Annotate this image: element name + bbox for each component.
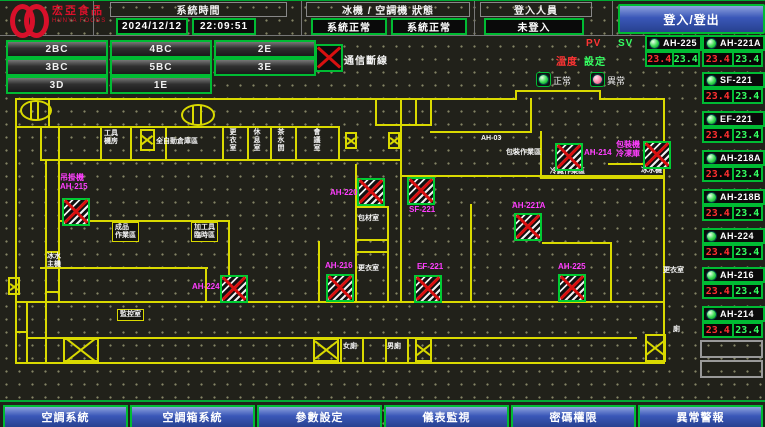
wall-segment	[415, 98, 417, 126]
device-values-AH-216: 23.423.4	[702, 283, 763, 299]
device-values-AH-225: 23.423.4	[645, 51, 700, 67]
device-row-AH-218B[interactable]: AH-218B	[702, 189, 765, 205]
nav-button-空調系統[interactable]: 空調系統	[3, 405, 128, 427]
stair-shaft-icon	[313, 338, 339, 362]
chiller-status-value: 系統正常	[311, 18, 387, 35]
device-status-led	[706, 231, 717, 242]
device-status-led	[706, 192, 717, 203]
device-pv-value: 23.4	[704, 246, 734, 258]
ahu-unit-icon[interactable]	[558, 274, 586, 302]
floor-button-1E[interactable]: 1E	[110, 76, 212, 94]
wall-segment	[387, 206, 389, 303]
ahu-unit-icon[interactable]	[407, 177, 435, 205]
header-divider	[474, 1, 475, 35]
wall-segment	[355, 206, 389, 208]
brand-name-en: HUNYA FOODS	[52, 16, 106, 26]
device-pv-value: 23.4	[704, 324, 734, 336]
device-name: AH-214	[720, 309, 754, 319]
room-label: 包裝作業區	[506, 149, 541, 157]
device-name: AH-218A	[720, 153, 761, 163]
device-pv-value: 23.4	[704, 90, 734, 102]
wall-segment	[542, 242, 612, 244]
system-time-label: 系統時間	[110, 2, 287, 17]
login-status-value: 未登入	[484, 18, 584, 35]
device-sv-value: 23.4	[734, 207, 762, 219]
room-label: 工具機房	[104, 130, 118, 146]
login-user-label: 登入人員	[480, 2, 592, 17]
temp-row-label: 溫度	[556, 53, 578, 68]
room-label: 監控室	[117, 309, 144, 321]
device-row-AH-218A[interactable]: AH-218A	[702, 150, 765, 166]
device-values-SF-221: 23.423.4	[702, 88, 763, 104]
wall-segment	[362, 337, 364, 364]
device-pv-value: 23.4	[704, 285, 734, 297]
ahu-unit-icon[interactable]	[514, 213, 542, 241]
wall-segment	[100, 126, 102, 161]
device-sv-value: 23.4	[734, 285, 762, 297]
wall-segment	[530, 98, 532, 133]
room-label: 茶水間	[276, 128, 284, 152]
device-sv-value: 23.4	[734, 324, 762, 336]
device-sv-value: 23.4	[734, 53, 762, 65]
room-label: 成品作業區	[112, 222, 139, 242]
header-divider	[93, 1, 94, 35]
room-label: 加工具臨時區	[191, 222, 218, 242]
device-status-led	[706, 153, 717, 164]
nav-button-參數設定[interactable]: 參數設定	[257, 405, 382, 427]
device-status-led	[706, 114, 717, 125]
system-time-value: 22:09:51	[192, 18, 256, 35]
ahu-unit-icon[interactable]	[357, 178, 385, 206]
wall-segment	[222, 126, 224, 161]
header-divider	[301, 1, 302, 35]
comm-disconnect-label: 通信斷線	[344, 52, 388, 67]
device-sv-value: 23.4	[734, 90, 762, 102]
header-divider	[612, 1, 613, 35]
bottom-nav-bar: 空調系統空調箱系統參數設定儀表監視密碼權限異常警報	[0, 400, 765, 427]
device-values-AH-218B: 23.423.4	[702, 205, 763, 221]
comm-disconnect-icon	[315, 44, 343, 72]
floor-button-4BC[interactable]: 4BC	[110, 40, 212, 58]
wall-segment	[470, 204, 472, 303]
device-pv-value: 23.4	[704, 168, 734, 180]
sv-column-label: SV	[618, 38, 633, 49]
device-pv-value: 23.4	[704, 207, 734, 219]
nav-button-異常警報[interactable]: 異常警報	[638, 405, 763, 427]
stair-shaft-icon	[63, 338, 99, 362]
room-label: 男廁	[387, 343, 401, 351]
ahu-unit-label: AH-216	[325, 261, 353, 270]
set-row-label: 設定	[584, 53, 606, 68]
device-name: AH-216	[720, 270, 754, 280]
room-label: 女廁	[343, 343, 357, 351]
wall-segment	[599, 90, 601, 100]
wall-segment	[599, 98, 665, 100]
ahu-unit-label: SF-221	[409, 205, 435, 214]
ahu-unit-icon[interactable]	[643, 141, 671, 169]
device-status-led	[706, 309, 717, 320]
stair-shaft-icon	[388, 132, 400, 149]
ahu-unit-icon[interactable]	[326, 274, 354, 302]
stair-shaft-icon	[8, 277, 20, 295]
room-label: 冰水主機	[47, 253, 61, 269]
ahu-unit-label: 吊掛機AH-215	[60, 173, 88, 191]
room-label: 更衣室	[358, 265, 379, 273]
spiral-stair-icon	[20, 100, 52, 121]
room-label: 包材室	[358, 215, 379, 223]
device-pv-value: 23.4	[704, 53, 734, 65]
device-row-AH-224[interactable]: AH-224	[702, 228, 765, 244]
wall-segment	[15, 331, 28, 333]
brand-text: 宏亞食品 HUNYA FOODS	[52, 6, 106, 26]
device-name: EF-221	[720, 114, 753, 124]
device-pv-value: 23.4	[704, 129, 734, 141]
device-row-AH-221A[interactable]: AH-221A	[702, 35, 765, 51]
device-name: AH-221A	[720, 38, 761, 48]
wall-segment	[402, 175, 663, 177]
nav-button-空調箱系統[interactable]: 空調箱系統	[130, 405, 255, 427]
room-label: 廁	[673, 326, 680, 334]
brand-logo-icon	[10, 4, 46, 31]
wall-segment	[400, 98, 402, 126]
device-sv-value: 23.4	[734, 129, 762, 141]
wall-segment	[540, 177, 663, 179]
legend-normal-led	[536, 72, 551, 87]
device-values-EF-221: 23.423.4	[702, 127, 763, 143]
device-values-AH-221A: 23.423.4	[702, 51, 763, 67]
device-status-led	[706, 270, 717, 281]
ahu-unit-icon[interactable]	[62, 198, 90, 226]
device-row-AH-216[interactable]: AH-216	[702, 267, 765, 283]
stair-shaft-icon	[415, 338, 432, 362]
brand-name: 宏亞食品	[52, 6, 106, 16]
wall-segment	[515, 90, 517, 100]
header-bar: 宏亞食品 HUNYA FOODS 系統時間 2024/12/12 22:09:5…	[0, 1, 765, 36]
floor-button-5BC[interactable]: 5BC	[110, 58, 212, 76]
device-values-AH-218A: 23.423.4	[702, 166, 763, 182]
wall-segment	[375, 98, 377, 126]
legend-abnormal-label: 異常	[607, 74, 625, 87]
empty-device-slot	[700, 360, 763, 378]
device-name: AH-225	[663, 38, 697, 48]
floor-button-3BC[interactable]: 3BC	[6, 58, 108, 76]
wall-segment	[318, 241, 320, 303]
wall-segment	[375, 124, 432, 126]
floor-button-2BC[interactable]: 2BC	[6, 40, 108, 58]
stair-shaft-icon	[140, 129, 155, 151]
wall-segment	[340, 159, 402, 161]
device-row-AH-214[interactable]: AH-214	[702, 306, 765, 322]
device-status-led	[706, 75, 717, 86]
login-logout-button[interactable]: 登入/登出	[618, 4, 765, 34]
legend-normal-label: 正常	[553, 74, 571, 87]
device-name: AH-224	[720, 231, 754, 241]
device-name: AH-218B	[720, 192, 761, 202]
ahu-unit-label: AH-224	[192, 282, 220, 291]
legend-abnormal-led	[590, 72, 605, 87]
wall-segment	[15, 98, 17, 364]
wall-segment	[338, 126, 340, 161]
pv-column-label: PV	[586, 38, 601, 49]
device-status-led	[649, 38, 660, 49]
device-row-AH-225[interactable]: AH-225	[645, 35, 702, 51]
ahu-unit-icon[interactable]	[414, 275, 442, 303]
empty-device-slot	[700, 340, 763, 358]
device-pv-value: 23.4	[647, 53, 674, 65]
ahu-unit-label: AH-220	[330, 188, 358, 197]
wall-segment	[295, 126, 297, 161]
floor-button-2E[interactable]: 2E	[214, 40, 316, 58]
wall-segment	[610, 242, 612, 303]
wall-segment	[40, 126, 42, 161]
device-values-AH-224: 23.423.4	[702, 244, 763, 260]
wall-segment	[340, 337, 342, 364]
wall-segment	[515, 90, 601, 92]
wall-segment	[430, 98, 432, 126]
spiral-stair-icon	[181, 104, 215, 126]
ahu-unit-label: AH-225	[558, 262, 586, 271]
room-label: 休息室	[252, 128, 260, 152]
ahu-unit-label: AH-221A	[512, 201, 545, 210]
room-label: 更衣室	[228, 128, 236, 152]
device-sv-value: 23.4	[734, 246, 762, 258]
wall-segment	[663, 98, 665, 364]
wall-segment	[247, 126, 249, 161]
ahu-unit-icon[interactable]	[220, 275, 248, 303]
room-label: 會議室	[312, 128, 320, 152]
hmi-screen: 宏亞食品 HUNYA FOODS 系統時間 2024/12/12 22:09:5…	[0, 0, 765, 427]
nav-button-儀表監視[interactable]: 儀表監視	[384, 405, 509, 427]
wall-segment	[355, 251, 389, 253]
wall-segment	[270, 126, 272, 161]
wall-segment	[430, 131, 532, 133]
ahu-unit-label: AH-214	[584, 148, 612, 157]
machine-status-label: 冰機 / 空調機 狀態	[306, 2, 470, 17]
device-name: SF-221	[720, 75, 753, 85]
nav-button-密碼權限[interactable]: 密碼權限	[511, 405, 636, 427]
room-label: AH-03	[481, 135, 501, 143]
device-sv-value: 23.4	[674, 53, 699, 65]
stair-shaft-icon	[645, 334, 666, 362]
wall-segment	[355, 239, 389, 241]
device-values-AH-214: 23.423.4	[702, 322, 763, 338]
device-sv-value: 23.4	[734, 168, 762, 180]
wall-segment	[40, 267, 208, 269]
wall-segment	[407, 337, 409, 364]
floor-button-3D[interactable]: 3D	[6, 76, 108, 94]
room-label: 全自動倉庫區	[156, 138, 198, 146]
ahu-status-value: 系統正常	[391, 18, 467, 35]
wall-segment	[400, 124, 402, 303]
wall-segment	[58, 126, 60, 161]
room-label: 更衣室	[663, 267, 684, 275]
ahu-unit-label: 包裝機冷凍庫	[616, 140, 640, 158]
device-row-SF-221[interactable]: SF-221	[702, 72, 765, 88]
ahu-unit-icon[interactable]	[555, 143, 583, 171]
device-status-led	[706, 38, 717, 49]
wall-segment	[130, 126, 132, 161]
floor-button-3E[interactable]: 3E	[214, 58, 316, 76]
wall-segment	[15, 98, 517, 100]
system-date-value: 2024/12/12	[116, 18, 188, 35]
wall-segment	[45, 291, 58, 293]
stair-shaft-icon	[345, 132, 357, 149]
device-row-EF-221[interactable]: EF-221	[702, 111, 765, 127]
ahu-unit-label: EF-221	[417, 262, 443, 271]
